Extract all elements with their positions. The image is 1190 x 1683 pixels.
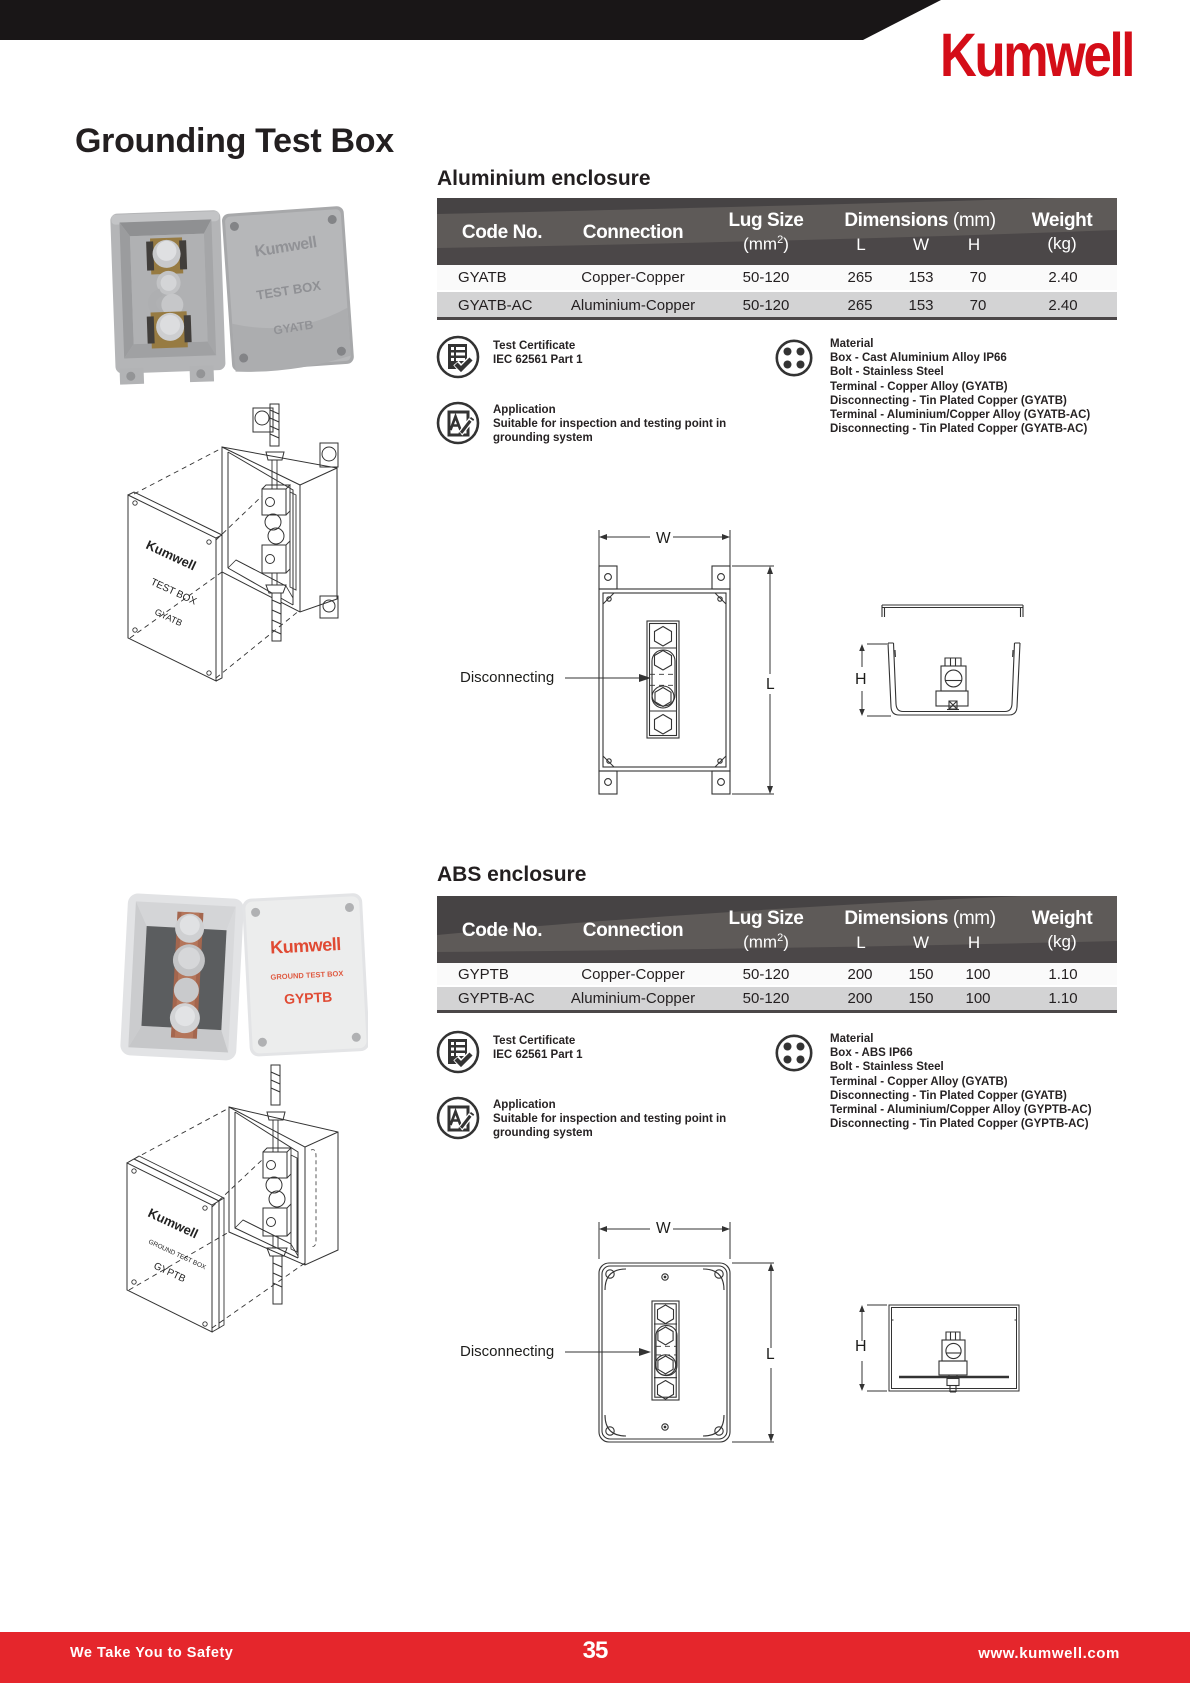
svg-text:GYPTB: GYPTB	[284, 989, 333, 1008]
svg-text:GYPTB: GYPTB	[152, 1261, 188, 1285]
svg-text:Kumwell: Kumwell	[144, 537, 199, 573]
svg-text:Kumwell: Kumwell	[270, 934, 341, 958]
svg-text:Kumwell: Kumwell	[146, 1205, 201, 1241]
svg-text:TEST BOX: TEST BOX	[149, 577, 199, 608]
